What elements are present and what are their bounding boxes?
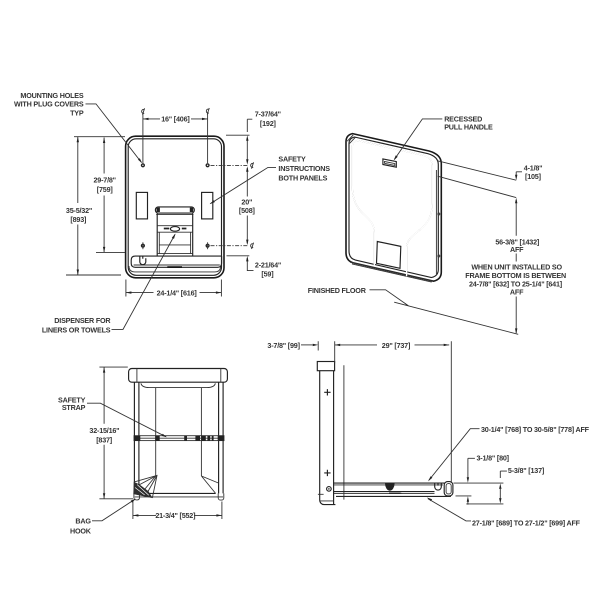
svg-text:[105]: [105] (525, 172, 541, 181)
svg-text:7-37/64": 7-37/64" (255, 110, 281, 119)
svg-text:27-1/8" [689] TO 27-1/2" [699]: 27-1/8" [689] TO 27-1/2" [699] AFF (472, 518, 581, 527)
svg-text:PULL HANDLE: PULL HANDLE (444, 123, 493, 132)
svg-text:2-21/64": 2-21/64" (255, 260, 281, 269)
svg-text:HOOK: HOOK (70, 527, 92, 536)
svg-text:21-3/4" [552]: 21-3/4" [552] (155, 511, 195, 520)
svg-text:BAG: BAG (75, 517, 91, 526)
svg-text:[59]: [59] (261, 269, 273, 278)
svg-text:TYP: TYP (70, 108, 84, 117)
svg-text:STRAP: STRAP (62, 403, 86, 412)
svg-text:16" [406]: 16" [406] (161, 115, 189, 124)
svg-text:[192]: [192] (260, 119, 276, 128)
svg-text:35-5/32": 35-5/32" (66, 206, 92, 215)
svg-text:24-1/4" [616]: 24-1/4" [616] (157, 288, 197, 297)
svg-text:3-1/8" [80]: 3-1/8" [80] (477, 454, 509, 463)
svg-text:AFF: AFF (510, 245, 524, 254)
svg-text:[837]: [837] (96, 436, 112, 445)
svg-text:LINERS OR TOWELS: LINERS OR TOWELS (42, 325, 111, 334)
svg-text:DISPENSER FOR: DISPENSER FOR (54, 316, 111, 325)
svg-text:SAFETY: SAFETY (278, 154, 306, 163)
svg-text:FINISHED FLOOR: FINISHED FLOOR (308, 286, 367, 295)
svg-text:4-1/8": 4-1/8" (524, 163, 543, 172)
svg-text:INSTRUCTIONS: INSTRUCTIONS (278, 164, 330, 173)
svg-text:3-7/8" [99]: 3-7/8" [99] (267, 341, 299, 350)
svg-text:[508]: [508] (239, 206, 255, 215)
svg-text:29" [737]: 29" [737] (382, 341, 410, 350)
svg-text:AFF: AFF (510, 288, 524, 297)
svg-text:29-7/8": 29-7/8" (94, 176, 116, 185)
svg-text:[759]: [759] (97, 185, 113, 194)
svg-text:5-3/8" [137]: 5-3/8" [137] (508, 466, 544, 475)
svg-text:BOTH PANELS: BOTH PANELS (278, 174, 327, 183)
svg-text:[893]: [893] (70, 215, 86, 224)
svg-text:30-1/4" [768] TO 30-5/8" [778]: 30-1/4" [768] TO 30-5/8" [778] AFF (481, 425, 590, 434)
svg-text:32-15/16": 32-15/16" (89, 426, 119, 435)
